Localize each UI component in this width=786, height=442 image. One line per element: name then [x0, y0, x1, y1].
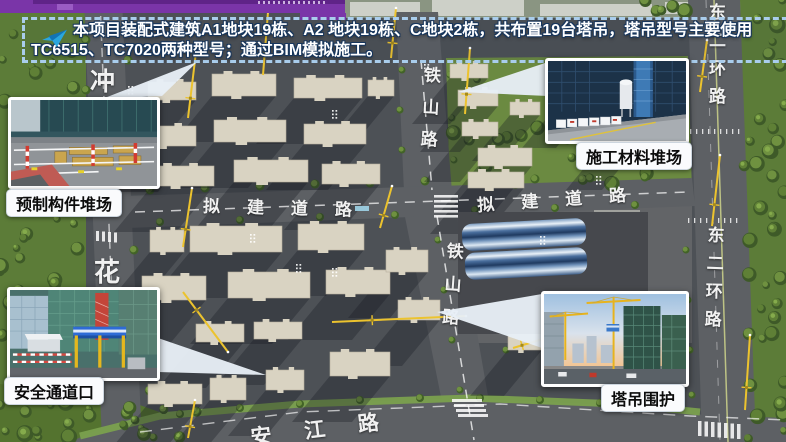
- banner-text-line1: 本项目装配式建筑A1地块19栋、A2 地块19栋、C地块2栋，共布置19台塔吊，…: [73, 21, 786, 41]
- precast-yard-photo: [8, 97, 160, 189]
- bim-slide: 冲 花 铁山路 铁山路 拟建道路 拟建道路 东二环路 东二环路 安江路 本项目装…: [0, 0, 786, 442]
- slide-top-bar-nub: [57, 4, 73, 10]
- slide-top-bar-ticks: [258, 1, 328, 4]
- safety-entrance-photo: [7, 287, 160, 381]
- callout-label-precast-yard: 预制构件堆场: [6, 189, 122, 217]
- callout-label-crane-enclosure: 塔吊围护: [601, 384, 685, 412]
- callout-label-safety-entrance: 安全通道口: [4, 377, 104, 405]
- crane-enclosure-photo: [541, 291, 689, 387]
- project-summary-banner: 本项目装配式建筑A1地块19栋、A2 地块19栋、C地块2栋，共布置19台塔吊，…: [22, 17, 786, 63]
- paper-plane-icon: [41, 27, 69, 49]
- material-yard-photo: [545, 58, 689, 144]
- callout-label-material-yard: 施工材料堆场: [576, 142, 692, 170]
- slide-top-bar: [0, 0, 345, 13]
